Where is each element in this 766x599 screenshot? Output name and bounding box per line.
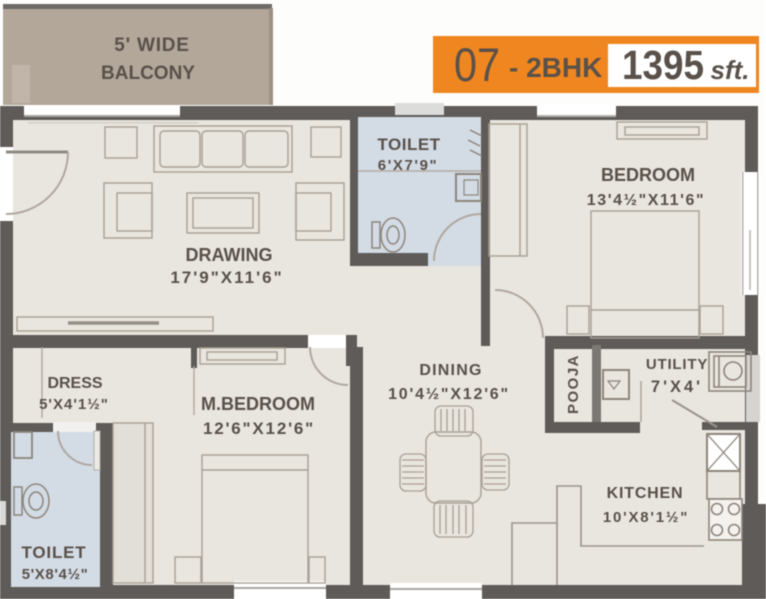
svg-text:1395: 1395	[622, 42, 704, 88]
svg-text:12'6"X12'6": 12'6"X12'6"	[203, 419, 315, 438]
svg-text:POOJA: POOJA	[565, 354, 582, 414]
svg-text:DRAWING: DRAWING	[186, 245, 273, 265]
svg-text:5'X8'4½": 5'X8'4½"	[22, 566, 89, 583]
svg-text:10'X8'1½": 10'X8'1½"	[603, 509, 689, 526]
svg-text:- 2BHK: - 2BHK	[509, 52, 602, 83]
svg-text:10'4½"X12'6": 10'4½"X12'6"	[388, 386, 510, 403]
svg-text:sft.: sft.	[711, 55, 750, 85]
svg-text:M.BEDROOM: M.BEDROOM	[201, 394, 315, 414]
svg-text:UTILITY: UTILITY	[646, 356, 708, 373]
svg-text:DINING: DINING	[419, 362, 482, 379]
svg-text:KITCHEN: KITCHEN	[607, 485, 684, 502]
svg-text:07: 07	[454, 38, 500, 91]
svg-text:TOILET: TOILET	[22, 543, 87, 562]
svg-text:17'9"X11'6": 17'9"X11'6"	[170, 268, 283, 287]
svg-text:7'X4': 7'X4'	[651, 378, 703, 396]
svg-text:TOILET: TOILET	[377, 135, 440, 154]
svg-text:6'X7'9": 6'X7'9"	[378, 157, 438, 174]
svg-text:5'X4'1½": 5'X4'1½"	[39, 396, 109, 413]
svg-text:5' WIDE: 5' WIDE	[114, 35, 190, 56]
svg-text:DRESS: DRESS	[47, 375, 102, 392]
svg-text:BEDROOM: BEDROOM	[601, 165, 695, 185]
svg-text:13'4½"X11'6": 13'4½"X11'6"	[587, 192, 706, 209]
svg-text:BALCONY: BALCONY	[101, 63, 195, 84]
